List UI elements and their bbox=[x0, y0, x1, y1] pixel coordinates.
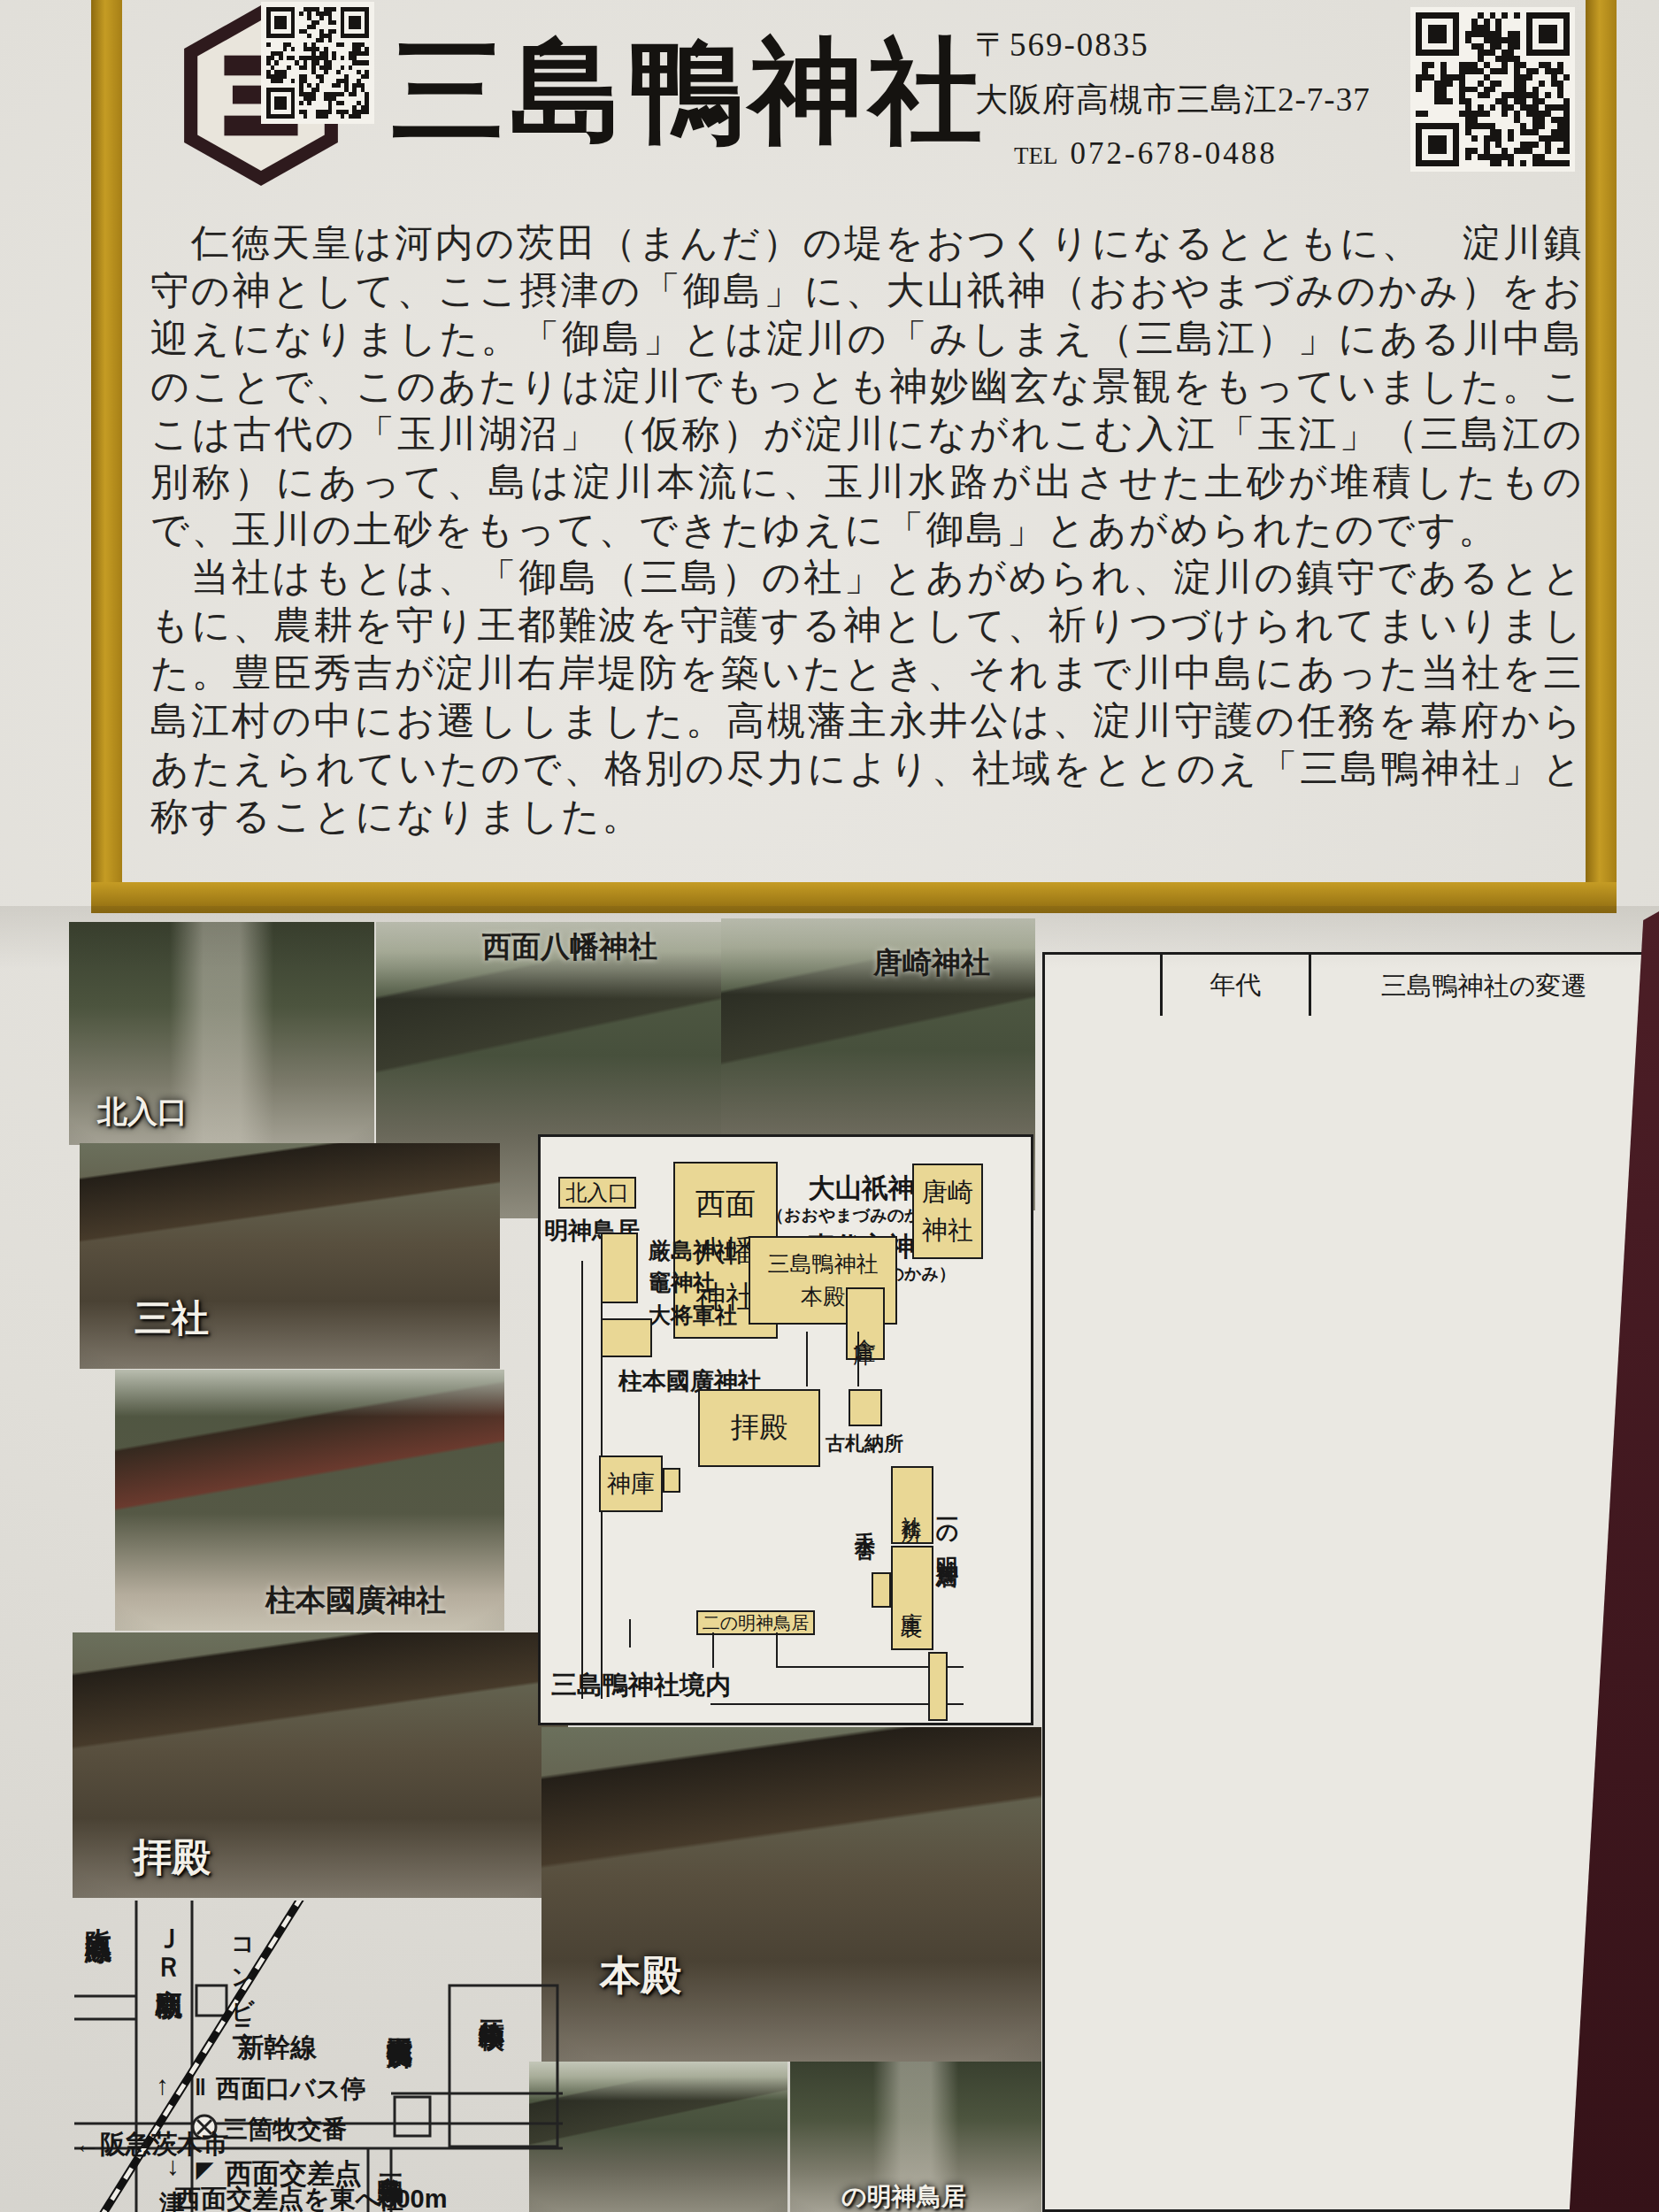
gm-shamusho: 社務所 bbox=[891, 1466, 933, 1544]
pamphlet-page: 三島鴨神社 〒569-0835 大阪府高槻市三島江2-7-37 TEL072-6… bbox=[0, 0, 1659, 2212]
gm-keidai-label: 三島鴨神社境内 bbox=[551, 1668, 731, 1703]
photo-label-hashiramoto: 柱本國廣神社 bbox=[265, 1580, 446, 1621]
gm-kosatsu-box bbox=[849, 1389, 882, 1426]
postal-code: 〒569-0835 bbox=[975, 23, 1391, 67]
photo-label-honden: 本殿 bbox=[600, 1948, 681, 2003]
photo-honden: 本殿 bbox=[541, 1727, 1041, 2062]
photo-label-saimen-hachiman: 西面八幡神社 bbox=[482, 927, 657, 967]
address-block: 〒569-0835 大阪府高槻市三島江2-7-37 TEL072-678-048… bbox=[975, 23, 1391, 172]
header-desc-cell: 三島鴨神社の変遷 bbox=[1311, 955, 1656, 1016]
sm-arrow-up: ↑ bbox=[156, 2070, 169, 2101]
gm-ichi-no-torii-label: 一の明神鳥居 bbox=[933, 1507, 963, 1554]
intro-paragraph-1: 仁徳天皇は河内の茨田（まんだ）の堤をおつくりになるとともに、 淀川鎮守の神として… bbox=[150, 219, 1584, 554]
photo-label-karasaki: 唐崎神社 bbox=[873, 943, 990, 983]
header-era-cell bbox=[1045, 955, 1163, 1016]
gm-kuri: 庫裏 bbox=[891, 1546, 933, 1650]
gm-conn-line bbox=[712, 1632, 714, 1668]
history-table: 年代三島鴨神社の変遷 bbox=[1042, 952, 1659, 2212]
photo-north-entrance: 北入口 bbox=[69, 922, 374, 1145]
gm-conn-line bbox=[806, 1332, 808, 1386]
gm-conn-line bbox=[857, 1332, 859, 1386]
gm-soko: 倉庫 bbox=[846, 1287, 885, 1360]
sm-koban: 三箇牧交番 bbox=[223, 2113, 347, 2147]
sm-shisho: 高槻市三箇牧支所 bbox=[382, 2016, 418, 2104]
gold-frame-bottom bbox=[91, 882, 1617, 913]
tel-label: TEL bbox=[1014, 142, 1057, 169]
grounds-map: 北入口 明神鳥居 西面 八幡 神社 大山祇神 （おおやまづみのかみ） 事代主神 … bbox=[538, 1134, 1033, 1725]
sm-jr-takatsuki: ＪＲ高槻駅 bbox=[150, 1909, 187, 1976]
sm-conbini: コンビニ bbox=[228, 1924, 259, 2039]
gm-ni-no-torii: 二の明神鳥居 bbox=[696, 1610, 815, 1635]
table-header-row: 年代三島鴨神社の変遷 bbox=[1045, 955, 1656, 1016]
qr-code bbox=[1410, 7, 1575, 172]
sm-note1: 西面交差点を東へ500m bbox=[175, 2182, 448, 2212]
gm-conn-line bbox=[629, 1619, 631, 1647]
gm-karasaki: 唐崎 神社 bbox=[912, 1164, 983, 1259]
page-title: 三島鴨神社 bbox=[391, 16, 1064, 169]
gm-conn-line bbox=[776, 1632, 778, 1668]
photo-label-haiden: 拝殿 bbox=[133, 1832, 211, 1884]
photo-label-sansha: 三社 bbox=[134, 1294, 209, 1343]
tel-line: TEL072-678-0488 bbox=[975, 136, 1391, 172]
tel-number: 072-678-0488 bbox=[1070, 136, 1277, 171]
gm-conn-line bbox=[710, 1703, 964, 1705]
gm-temizusha-box bbox=[872, 1572, 891, 1608]
gm-north-entrance: 北入口 bbox=[558, 1177, 636, 1209]
street-map: 大阪高槻線 ＪＲ高槻駅 ↑ コンビニ 新幹線 ‖ 西面口バス停 三箇牧交番 高槻… bbox=[74, 1901, 563, 2212]
gm-kosatsu-label: 古札納所 bbox=[826, 1431, 903, 1457]
gm-ichi-no-torii-bar bbox=[928, 1652, 948, 1721]
qr-code-map bbox=[261, 2, 374, 124]
sm-note2: 高槻市三箇牧支所向 bbox=[191, 2208, 422, 2212]
sm-shinkansen: 新幹線 bbox=[237, 2030, 317, 2066]
gm-haiden: 拝殿 bbox=[698, 1389, 820, 1467]
intro-paragraph-2: 当社はもとは、「御島（三島）の社」とあがめられ、淀川の鎮守であるとともに、農耕を… bbox=[150, 554, 1584, 841]
photo-label-torii-partial: の明神鳥居 bbox=[841, 2180, 966, 2212]
sm-school: 三箇牧小学校 bbox=[474, 2000, 510, 2095]
sm-saimen-bus: 西面口バス停 bbox=[216, 2072, 365, 2106]
photo-temizusha bbox=[529, 2062, 787, 2212]
gm-hashiramoto-box bbox=[601, 1318, 652, 1357]
photo-hashiramoto: 柱本國廣神社 bbox=[115, 1370, 504, 1631]
intro-text: 仁徳天皇は河内の茨田（まんだ）の堤をおつくりになるとともに、 淀川鎮守の神として… bbox=[150, 219, 1584, 841]
sm-osaka-takatsuki-line: 大阪高槻線 bbox=[80, 1906, 116, 1919]
photo-torii-path: の明神鳥居 bbox=[790, 2062, 1041, 2212]
gm-temizusha-label: 手水舎 bbox=[852, 1516, 879, 1526]
sm-bus-mark: ‖ bbox=[195, 2074, 206, 2101]
photo-haiden: 拝殿 bbox=[73, 1632, 568, 1898]
gm-massha-box bbox=[601, 1233, 638, 1303]
sm-crossing-mark: ◤ bbox=[196, 2157, 212, 2182]
header-year-cell: 年代 bbox=[1163, 955, 1311, 1016]
sm-arrow-down: ↓ bbox=[166, 2152, 180, 2181]
gm-massha-label: 厳島神社 竈神社 大将軍社 bbox=[649, 1234, 737, 1331]
sm-tsu: 津 bbox=[159, 2187, 185, 2212]
photo-label-north-entrance: 北入口 bbox=[97, 1092, 188, 1133]
gm-path-line bbox=[581, 1261, 583, 1699]
sm-mishima: 三島鴨神社 bbox=[373, 2154, 409, 2167]
gold-frame-right bbox=[1586, 0, 1617, 913]
gm-shinko: 神庫 bbox=[599, 1455, 663, 1512]
gm-shinko-annex bbox=[663, 1468, 680, 1493]
address-line: 大阪府高槻市三島江2-7-37 bbox=[975, 78, 1391, 122]
gold-frame-left bbox=[91, 0, 122, 913]
photo-sansha: 三社 bbox=[80, 1143, 500, 1369]
